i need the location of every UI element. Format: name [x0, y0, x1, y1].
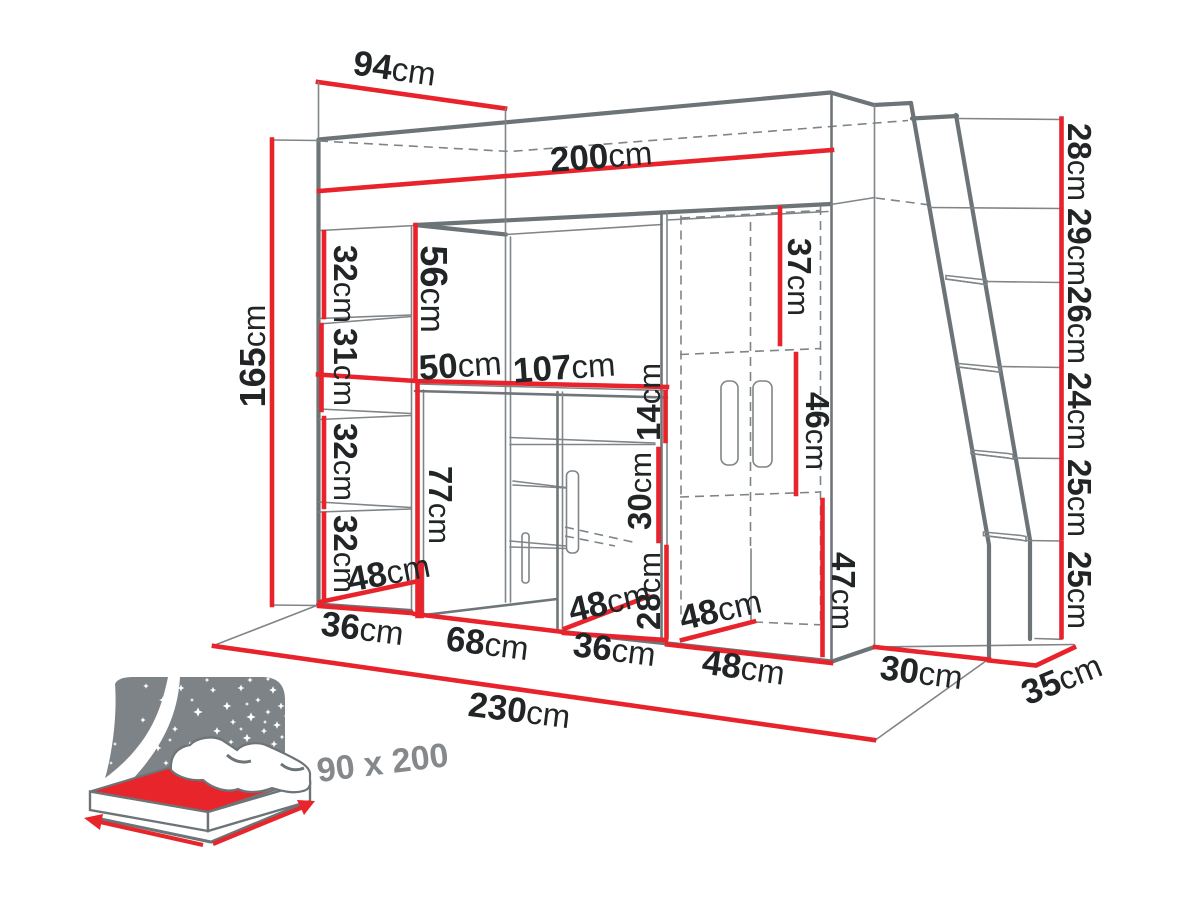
svg-text:32cm: 32cm: [327, 245, 364, 323]
svg-text:28cm: 28cm: [1061, 123, 1098, 201]
svg-text:165cm: 165cm: [232, 305, 273, 408]
svg-text:37cm: 37cm: [781, 238, 818, 316]
svg-text:14cm: 14cm: [630, 363, 667, 441]
svg-text:50cm: 50cm: [417, 343, 502, 388]
svg-text:25cm: 25cm: [1061, 551, 1098, 629]
svg-text:32cm: 32cm: [327, 515, 364, 593]
svg-text:24cm: 24cm: [1061, 372, 1098, 450]
svg-text:46cm: 46cm: [799, 392, 836, 470]
svg-text:32cm: 32cm: [327, 423, 364, 501]
svg-text:29cm: 29cm: [1061, 208, 1098, 286]
svg-text:47cm: 47cm: [825, 552, 862, 630]
svg-text:25cm: 25cm: [1061, 459, 1098, 537]
svg-text:26cm: 26cm: [1061, 286, 1098, 364]
svg-text:56cm: 56cm: [412, 245, 454, 333]
svg-text:31cm: 31cm: [327, 328, 364, 406]
svg-text:28cm: 28cm: [630, 552, 667, 630]
svg-text:30cm: 30cm: [621, 452, 658, 530]
svg-text:77cm: 77cm: [422, 466, 459, 544]
